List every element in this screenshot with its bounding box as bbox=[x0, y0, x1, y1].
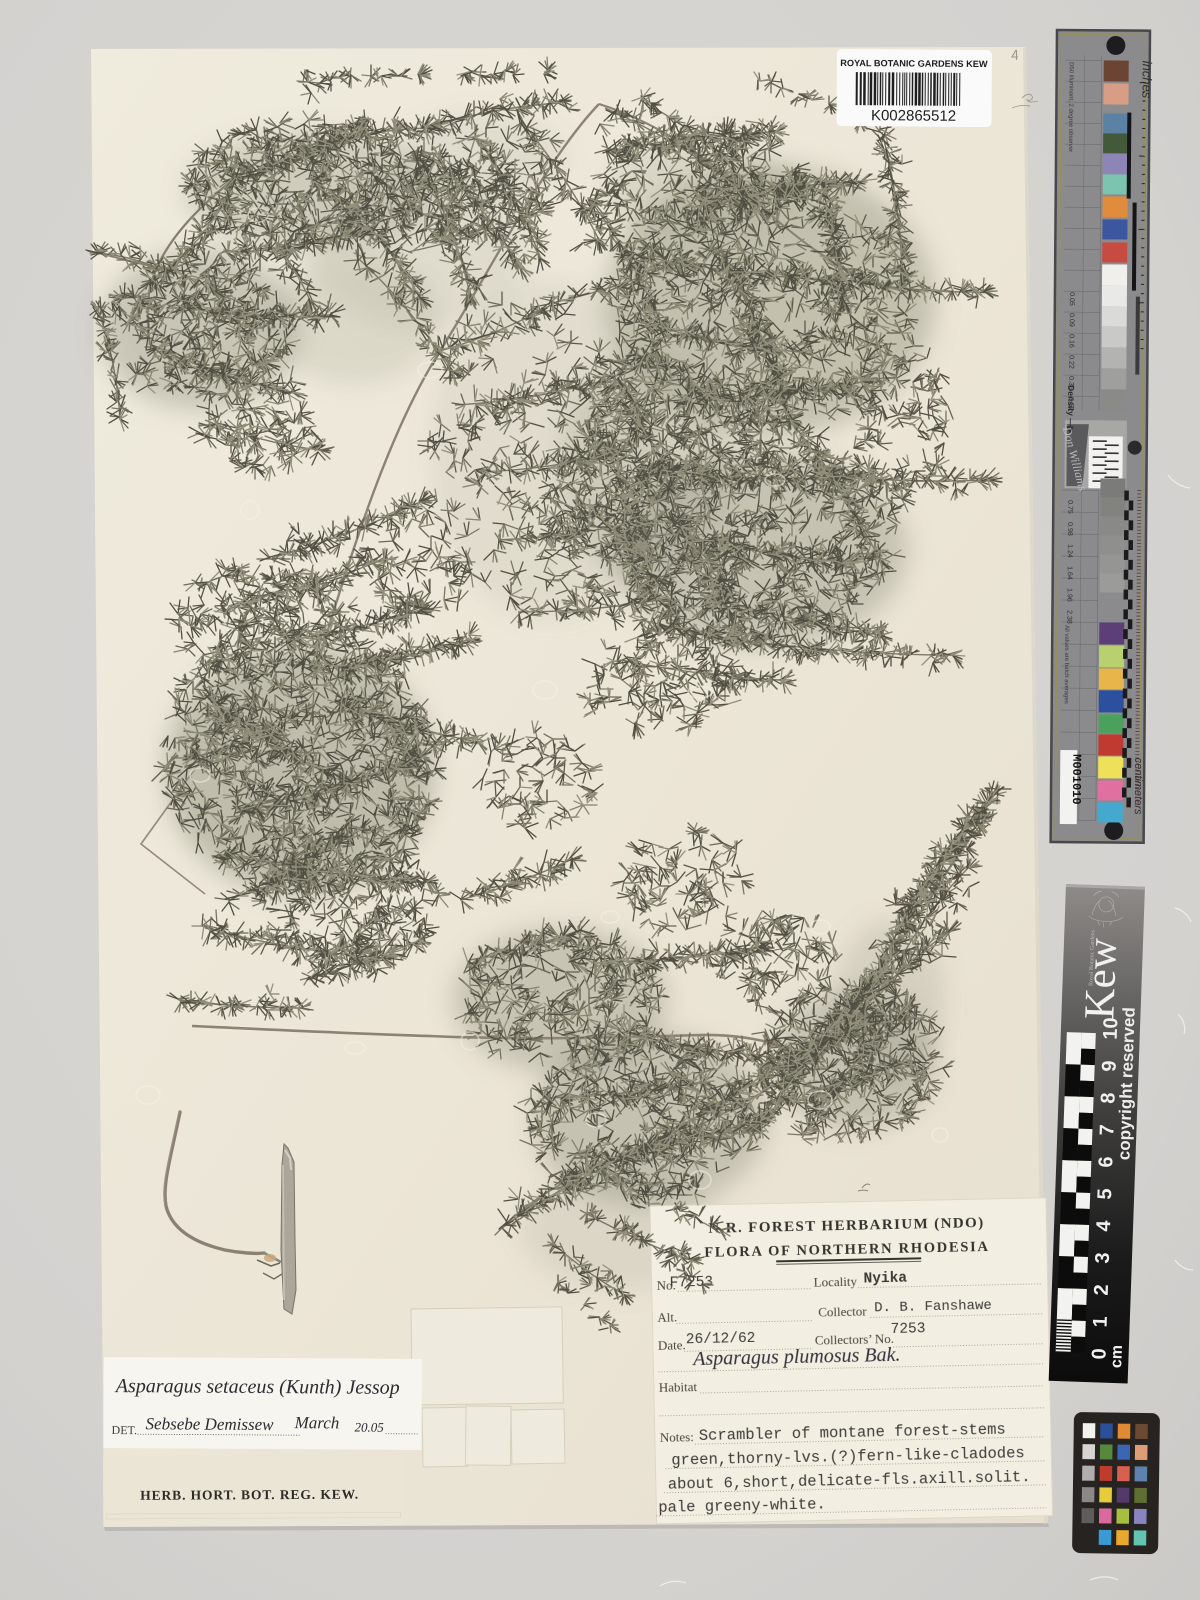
svg-text:0.52: 0.52 bbox=[1067, 397, 1074, 411]
svg-text:0.22: 0.22 bbox=[1067, 355, 1074, 369]
svg-text:Asparagus plumosus Bak.: Asparagus plumosus Bak. bbox=[691, 1344, 901, 1370]
svg-text:1.64: 1.64 bbox=[1066, 566, 1073, 580]
svg-text:0.75: 0.75 bbox=[1066, 500, 1073, 514]
svg-text:4: 4 bbox=[1093, 1219, 1115, 1232]
svg-text:0.36: 0.36 bbox=[1067, 376, 1074, 390]
svg-text:0.09: 0.09 bbox=[1068, 313, 1075, 327]
svg-text:1.96: 1.96 bbox=[1066, 588, 1073, 602]
svg-text:cm: cm bbox=[1108, 1345, 1126, 1369]
svg-text:D50 illuminant, 2 degree obser: D50 illuminant, 2 degree observer bbox=[1067, 62, 1074, 152]
svg-text:Habitat: Habitat bbox=[659, 1379, 698, 1395]
svg-text:0.16: 0.16 bbox=[1068, 334, 1075, 348]
svg-text:D. B. Fanshawe: D. B. Fanshawe bbox=[874, 1298, 992, 1316]
svg-text:6: 6 bbox=[1095, 1156, 1117, 1168]
svg-text:0.98: 0.98 bbox=[1066, 522, 1073, 536]
svg-text:20.05: 20.05 bbox=[355, 1420, 385, 1435]
svg-text:Notes:: Notes: bbox=[660, 1429, 694, 1445]
svg-text:1.24: 1.24 bbox=[1066, 544, 1073, 558]
svg-text:HERB. HORT. BOT. REG. KEW.: HERB. HORT. BOT. REG. KEW. bbox=[140, 1487, 359, 1503]
svg-text:26/12/62: 26/12/62 bbox=[686, 1331, 756, 1348]
svg-text:ROYAL BOTANIC GARDENS KEW: ROYAL BOTANIC GARDENS KEW bbox=[840, 58, 988, 69]
svg-text:pale greeny-white.: pale greeny-white. bbox=[658, 1495, 826, 1517]
svg-text:Asparagus setaceus (Kunth) Jes: Asparagus setaceus (Kunth) Jessop bbox=[114, 1375, 400, 1399]
svg-text:Locality: Locality bbox=[813, 1274, 857, 1290]
svg-text:2.38: 2.38 bbox=[1065, 610, 1072, 624]
svg-text:inches: inches bbox=[1139, 61, 1154, 99]
svg-text:Nyika: Nyika bbox=[863, 1271, 907, 1288]
svg-text:DET.: DET. bbox=[112, 1423, 138, 1437]
svg-text:8: 8 bbox=[1097, 1092, 1119, 1104]
svg-text:Alt.: Alt. bbox=[657, 1309, 677, 1324]
svg-text:1: 1 bbox=[1090, 1316, 1112, 1328]
svg-text:March: March bbox=[294, 1413, 340, 1432]
svg-text:Sebsebe Demissew: Sebsebe Demissew bbox=[146, 1414, 275, 1434]
svg-text:7253: 7253 bbox=[890, 1321, 925, 1338]
svg-text:2: 2 bbox=[1091, 1284, 1113, 1296]
svg-text:All values are batch averages: All values are batch averages bbox=[1063, 625, 1070, 704]
svg-text:K002865512: K002865512 bbox=[871, 107, 956, 125]
svg-text:9: 9 bbox=[1098, 1060, 1120, 1072]
svg-text:7: 7 bbox=[1096, 1124, 1118, 1136]
svg-text:Date.: Date. bbox=[658, 1337, 686, 1353]
svg-text:M001010: M001010 bbox=[1069, 754, 1083, 805]
svg-text:centimeters: centimeters bbox=[1132, 758, 1144, 815]
svg-text:10: 10 bbox=[1100, 1017, 1123, 1040]
svg-text:Collector: Collector bbox=[818, 1303, 867, 1319]
svg-text:Kew: Kew bbox=[1076, 937, 1126, 1020]
svg-text:0: 0 bbox=[1088, 1348, 1110, 1360]
svg-text:5: 5 bbox=[1094, 1188, 1116, 1200]
svg-text:3: 3 bbox=[1092, 1252, 1114, 1264]
svg-text:0.05: 0.05 bbox=[1068, 292, 1075, 306]
